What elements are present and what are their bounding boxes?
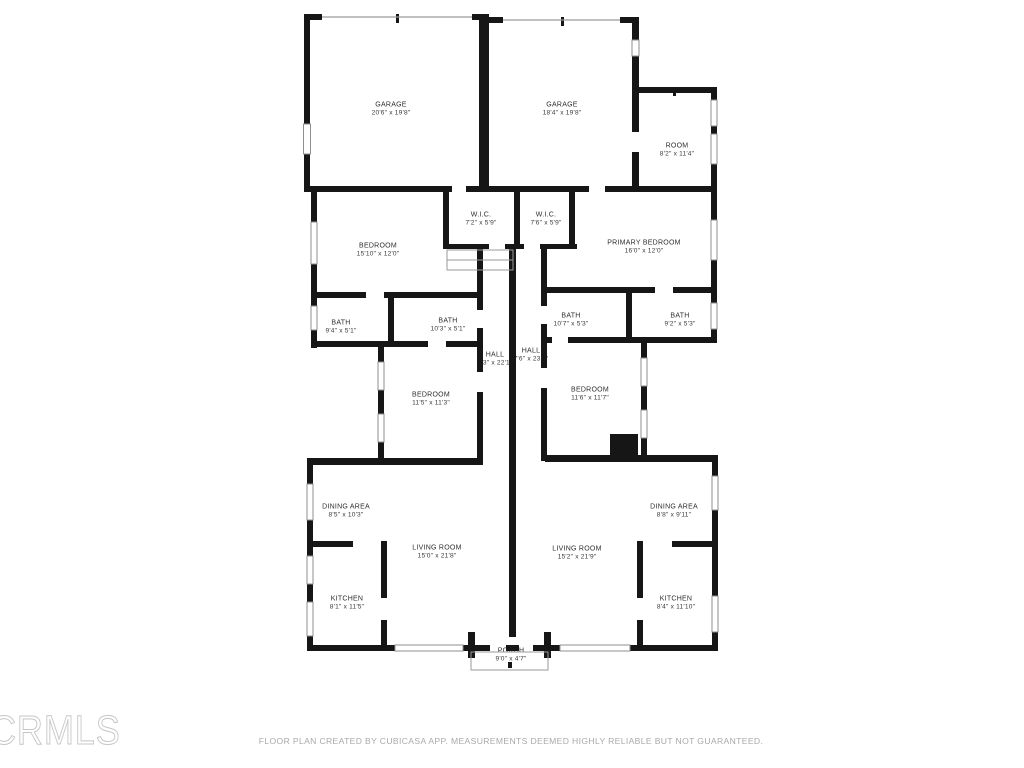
room-dims: 11'6" x 11'7" xyxy=(571,395,609,403)
room-label-living-left: LIVING ROOM 15'0" x 21'8" xyxy=(412,545,461,562)
room-dims: 8'8" x 9'11" xyxy=(650,512,698,520)
room-name: BATH xyxy=(664,313,695,321)
room-label-garage-left: GARAGE 20'6" x 19'8" xyxy=(372,102,411,119)
room-label-wic-left: W.I.C. 7'2" x 5'9" xyxy=(465,212,496,229)
room-label-bedroom-left: BEDROOM 15'10" x 12'0" xyxy=(357,243,400,260)
room-name: ROOM xyxy=(660,143,694,151)
room-dims: 15'10" x 12'0" xyxy=(357,251,400,259)
room-label-bath-3: BATH 10'7" x 5'3" xyxy=(554,313,589,330)
room-name: GARAGE xyxy=(372,102,411,110)
room-label-primary-bedroom: PRIMARY BEDROOM 16'0" x 12'0" xyxy=(607,240,681,257)
room-name: PORCH xyxy=(495,648,526,656)
floor-plan-page: GARAGE 20'6" x 19'8" GARAGE 18'4" x 19'8… xyxy=(0,0,1024,768)
room-dims: 8'2" x 11'4" xyxy=(660,151,694,159)
room-dims: 7'2" x 5'9" xyxy=(465,220,496,228)
room-label-bath-4: BATH 9'2" x 5'3" xyxy=(664,313,695,330)
room-label-bath-1: BATH 9'4" x 5'1" xyxy=(325,320,356,337)
room-name: DINING AREA xyxy=(322,504,370,512)
closet-and-porch-outlines xyxy=(447,250,548,670)
room-name: W.I.C. xyxy=(530,212,561,220)
room-label-living-right: LIVING ROOM 15'2" x 21'9" xyxy=(552,546,601,563)
room-dims: 15'0" x 21'8" xyxy=(412,553,461,561)
room-name: LIVING ROOM xyxy=(552,546,601,554)
room-name: PRIMARY BEDROOM xyxy=(607,240,681,248)
room-name: W.I.C. xyxy=(465,212,496,220)
room-dims: 8'1" x 11'5" xyxy=(330,604,364,612)
room-label-room: ROOM 8'2" x 11'4" xyxy=(660,143,694,160)
fireplace-block xyxy=(610,434,638,456)
room-name: HALL xyxy=(478,352,513,360)
room-label-bedroom-mid-left: BEDROOM 11'5" x 11'3" xyxy=(412,392,450,409)
room-dims: 9'0" x 4'7" xyxy=(495,656,526,664)
room-name: DINING AREA xyxy=(650,504,698,512)
room-dims: 11'5" x 11'3" xyxy=(412,400,450,408)
room-label-hall-left: HALL 3'3" x 22'1" xyxy=(478,352,513,369)
room-name: GARAGE xyxy=(543,102,582,110)
room-dims: 9'4" x 5'1" xyxy=(325,328,356,336)
crmls-watermark: CRMLS xyxy=(0,707,121,754)
room-dims: 15'2" x 21'9" xyxy=(552,554,601,562)
footer-disclaimer: FLOOR PLAN CREATED BY CUBICASA APP. MEAS… xyxy=(259,736,763,746)
room-label-kitchen-right: KITCHEN 8'4" x 11'10" xyxy=(657,596,695,613)
garage-door-lines xyxy=(322,17,620,20)
room-name: HALL xyxy=(514,348,549,356)
room-dims: 16'0" x 12'0" xyxy=(607,248,681,256)
room-dims: 8'5" x 10'3" xyxy=(322,512,370,520)
room-label-bath-2: BATH 10'3" x 5'1" xyxy=(431,318,466,335)
room-dims: 9'2" x 5'3" xyxy=(664,321,695,329)
room-label-kitchen-left: KITCHEN 8'1" x 11'5" xyxy=(330,596,364,613)
room-dims: 7'6" x 23'1" xyxy=(514,356,549,364)
room-dims: 8'4" x 11'10" xyxy=(657,604,695,612)
room-dims: 10'7" x 5'3" xyxy=(554,321,589,329)
room-label-hall-right: HALL 7'6" x 23'1" xyxy=(514,348,549,365)
room-label-porch: PORCH 9'0" x 4'7" xyxy=(495,648,526,665)
room-name: KITCHEN xyxy=(330,596,364,604)
room-dims: 10'3" x 5'1" xyxy=(431,326,466,334)
room-dims: 3'3" x 22'1" xyxy=(478,360,513,368)
room-name: BATH xyxy=(325,320,356,328)
windows xyxy=(304,40,719,651)
room-label-dining-left: DINING AREA 8'5" x 10'3" xyxy=(322,504,370,521)
room-label-wic-right: W.I.C. 7'6" x 5'9" xyxy=(530,212,561,229)
room-dims: 18'4" x 19'8" xyxy=(543,110,582,118)
room-name: BATH xyxy=(554,313,589,321)
room-name: LIVING ROOM xyxy=(412,545,461,553)
room-dims: 20'6" x 19'8" xyxy=(372,110,411,118)
walls xyxy=(304,14,718,668)
room-label-bedroom-mid-right: BEDROOM 11'6" x 11'7" xyxy=(571,387,609,404)
room-name: BEDROOM xyxy=(571,387,609,395)
room-label-garage-right: GARAGE 18'4" x 19'8" xyxy=(543,102,582,119)
room-label-dining-right: DINING AREA 8'8" x 9'11" xyxy=(650,504,698,521)
room-name: KITCHEN xyxy=(657,596,695,604)
room-dims: 7'6" x 5'9" xyxy=(530,220,561,228)
room-name: BATH xyxy=(431,318,466,326)
room-name: BEDROOM xyxy=(357,243,400,251)
room-name: BEDROOM xyxy=(412,392,450,400)
